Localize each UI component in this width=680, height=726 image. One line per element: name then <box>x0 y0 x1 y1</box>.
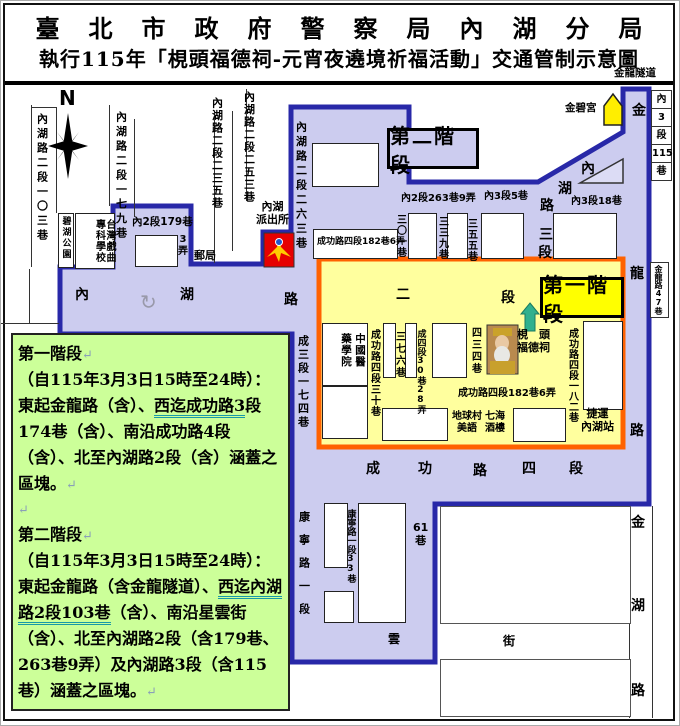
lane-nei2-179-label: 內2段179巷 <box>132 216 193 228</box>
hospital-label-col1: 中國醫 <box>354 333 365 368</box>
road-jinlong-2: 龍 <box>630 266 644 282</box>
stage1-label-box: 第一階段 <box>540 277 624 318</box>
road-cheng3-174: 成三段一七四巷 <box>297 335 309 430</box>
road-chenggong-2: 功 <box>418 461 432 477</box>
road-cheng4-182: 成功路四段一八二巷 <box>566 328 577 423</box>
road-neihu-4: 二 <box>396 287 410 303</box>
road-neihu2-263: 內湖路二段二六三巷 <box>295 121 307 252</box>
compass-n: N <box>59 87 76 110</box>
legend-paragraph-2: ↵ <box>18 496 283 522</box>
lane-376: 三七六巷 <box>393 331 404 379</box>
road-jie: 街 <box>503 635 515 649</box>
legend-paragraph-1: （自115年3月3日15時至24時）：東起金龍路（含）、西迄成功路3段174巷（… <box>18 367 283 497</box>
lane-nei2-263-9: 內2段263巷9弄 <box>401 193 476 205</box>
nei3-115-cell-1: 3 <box>651 109 672 127</box>
temple-name-label: 梘 頭 福德祠 <box>517 329 550 354</box>
lane-301: 三〇一巷 <box>394 214 405 258</box>
road-chenggong-5: 段 <box>569 461 583 477</box>
lane-339: 三三九巷 <box>436 216 447 260</box>
road-neihu-5: 段 <box>501 290 515 306</box>
road-neihu2-103: 內湖路二段一〇三巷 <box>36 113 48 244</box>
compass-icon <box>48 113 88 179</box>
road-neihu-1: 內 <box>75 287 89 303</box>
nei3-115-cell-2: 段 <box>651 127 672 145</box>
road-neihu2-179: 內湖路二段一七九巷 <box>115 111 127 242</box>
jinlong-tunnel-label: 金龍隧道 <box>614 67 656 79</box>
lane-nei3-5: 內3段5巷 <box>484 191 528 203</box>
diqiucun-label: 地球村 美語 <box>452 411 482 434</box>
post-office-label: 郵局 <box>194 250 216 263</box>
jinbi-temple-label: 金碧宮 <box>565 102 597 114</box>
mrt-neihu-label: 捷運 內湖站 <box>581 408 614 433</box>
road-neihu-3: 路 <box>284 292 298 308</box>
lane-355: 三五五巷 <box>465 218 476 262</box>
stage2-label-box: 第二階段 <box>387 128 479 169</box>
road-cheng4-30: 成功路四段三十巷 <box>368 329 379 417</box>
road-neihu2-235: 內湖路二段二三五巷 <box>211 97 223 210</box>
deity-photo <box>487 325 518 374</box>
road-neihu3-5: 段 <box>538 245 552 261</box>
lane-61: 61 巷 <box>413 522 428 547</box>
road-jinlong-47-label: 金龍路47巷 <box>650 262 669 318</box>
road-kangning1-33: 康寧路一段33巷 <box>345 509 354 583</box>
page-title-line2: 執行115年「梘頭福德祠-元宵夜遶境祈福活動」交通管制示意圖 <box>5 43 673 72</box>
qihai-label: 七海 酒樓 <box>485 411 505 434</box>
road-chenggong-3: 路 <box>473 463 487 479</box>
page-title-line1: 臺北市政府警察局內湖分局 <box>5 9 673 44</box>
lane-434: 四三四巷 <box>469 327 480 375</box>
nei3-115-cell-4: 巷 <box>651 163 672 181</box>
lane-cheng4-182-6-box: 成功路四段182巷6弄 <box>317 237 405 247</box>
road-neihu3-4: 三 <box>539 227 553 243</box>
road-jinhu-1: 金 <box>631 515 645 531</box>
school-label: 台灣戲曲專科學校 <box>78 215 114 267</box>
road-neihu-2: 湖 <box>180 287 194 303</box>
legend-paragraph-0: 第一階段↵ <box>18 341 283 367</box>
roundabout-icon: ↻ <box>140 291 157 314</box>
lane-nei3-18: 內3段18巷 <box>571 196 622 208</box>
road-neihu2-253: 內湖路二段二五三巷 <box>243 91 255 204</box>
police-badge-icon <box>264 233 294 267</box>
road-jinhu-2: 湖 <box>631 598 645 614</box>
nei3-115-cell-3: 115 <box>651 145 672 163</box>
traffic-control-map-page: 臺北市政府警察局內湖分局 執行115年「梘頭福德祠-元宵夜遶境祈福活動」交通管制… <box>0 0 680 726</box>
bihu-park-label: 碧湖公園 <box>60 216 69 260</box>
title-bar: 臺北市政府警察局內湖分局 執行115年「梘頭福德祠-元宵夜遶境祈福活動」交通管制… <box>5 5 673 85</box>
road-neihu3-3: 路 <box>540 198 554 214</box>
lane-cheng4-182-6: 成功路四段182巷6弄 <box>458 388 556 400</box>
road-neihu3-2: 湖 <box>558 181 572 197</box>
alley-3-label: 3 弄 <box>178 234 188 257</box>
legend-paragraph-4: （自115年3月3日15時至24時）：東起金龍路（含金龍隧道）、西迄內湖路2段1… <box>18 548 283 703</box>
jinbi-temple-icon <box>604 94 622 125</box>
road-jinlong-1: 金 <box>632 103 646 119</box>
nei3-115-cell-0: 內 <box>651 90 672 109</box>
temple-arrow-icon <box>521 303 539 331</box>
police-station-label: 內湖 派出所 <box>256 201 289 226</box>
road-yun: 雲 <box>388 633 400 647</box>
road-neihu3-1: 內 <box>581 161 595 177</box>
road-chenggong-1: 成 <box>366 461 380 477</box>
road-nei3-115-column: 內3段115巷 <box>651 90 672 181</box>
legend-box: 第一階段↵（自115年3月3日15時至24時）：東起金龍路（含）、西迄成功路3段… <box>11 333 290 711</box>
hospital-label-col2: 藥學院 <box>340 333 351 368</box>
road-kangning1: 康寧路一段 <box>298 511 310 626</box>
legend-paragraph-3: 第二階段↵ <box>18 522 283 548</box>
road-cheng4-30-28: 成四段30巷28弄 <box>415 329 424 414</box>
road-jinlong-3: 路 <box>630 423 644 439</box>
road-chenggong-4: 四 <box>522 461 536 477</box>
road-jinhu-3: 路 <box>631 683 645 699</box>
